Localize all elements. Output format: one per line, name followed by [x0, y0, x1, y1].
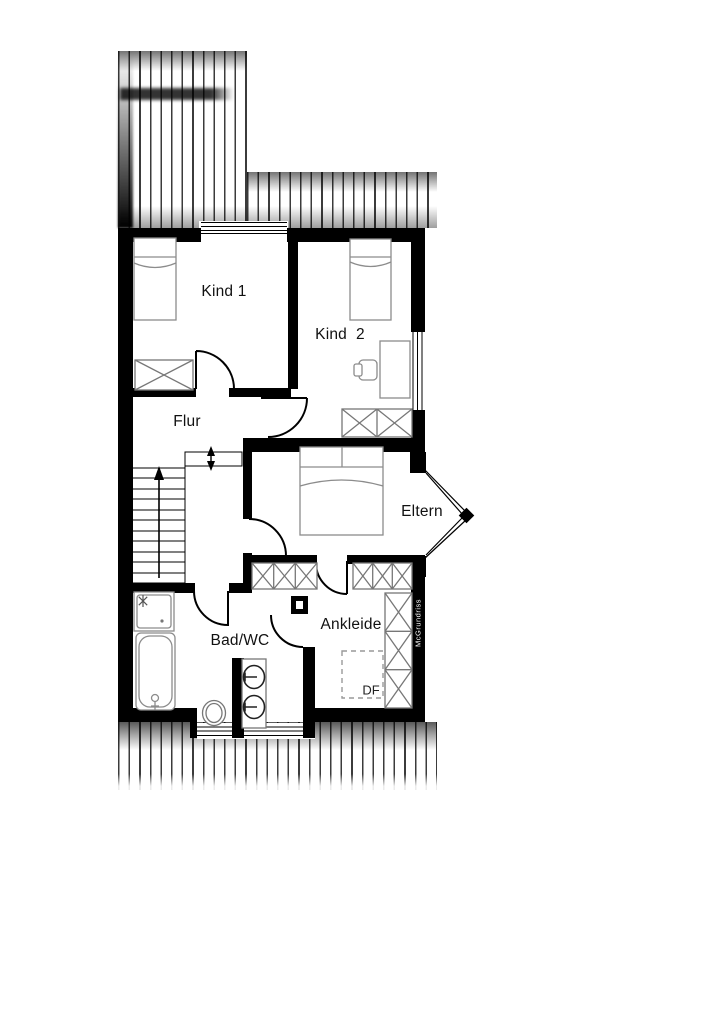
floorplan-page: Kind 1 Kind 2 Flur Eltern Bad/WC Ankleid…	[0, 0, 724, 1024]
door-badwc	[194, 591, 228, 626]
toilet	[203, 701, 226, 726]
door-kind2	[268, 398, 307, 437]
kind2-desk	[380, 341, 410, 398]
furniture	[134, 238, 412, 728]
floorplan-drawing	[0, 0, 724, 1024]
bathtub	[136, 633, 175, 710]
washbasins	[242, 659, 266, 728]
eltern-bed	[300, 447, 383, 535]
ankleide-wardrobe-right	[353, 563, 412, 589]
door-ankleide	[271, 615, 303, 647]
kind2-bed	[350, 239, 391, 320]
shower	[134, 592, 174, 631]
kind1-bed	[134, 238, 176, 320]
room-label-kind1: Kind 1	[201, 283, 246, 301]
room-label-flur: Flur	[173, 413, 201, 431]
door-eltern-ankleide	[316, 561, 347, 594]
room-label-eltern: Eltern	[401, 503, 443, 521]
stairs-up-arrow	[154, 466, 164, 578]
roof-window-label: DF	[362, 683, 379, 698]
room-label-ankleide: Ankleide	[320, 616, 381, 634]
chimney-core	[296, 601, 303, 609]
kind1-wardrobe	[135, 360, 193, 390]
watermark-text: McGrundriss	[414, 599, 423, 647]
kind2-chair	[354, 360, 377, 380]
room-label-badwc: Bad/WC	[211, 632, 270, 650]
ankleide-wardrobe-left	[252, 563, 317, 589]
kind2-wardrobe	[342, 409, 412, 437]
stairs	[133, 446, 242, 583]
door-eltern	[249, 519, 286, 556]
door-kind1	[196, 351, 234, 389]
ankleide-wardrobe-tall	[385, 593, 412, 708]
room-label-kind2: Kind 2	[315, 326, 365, 344]
